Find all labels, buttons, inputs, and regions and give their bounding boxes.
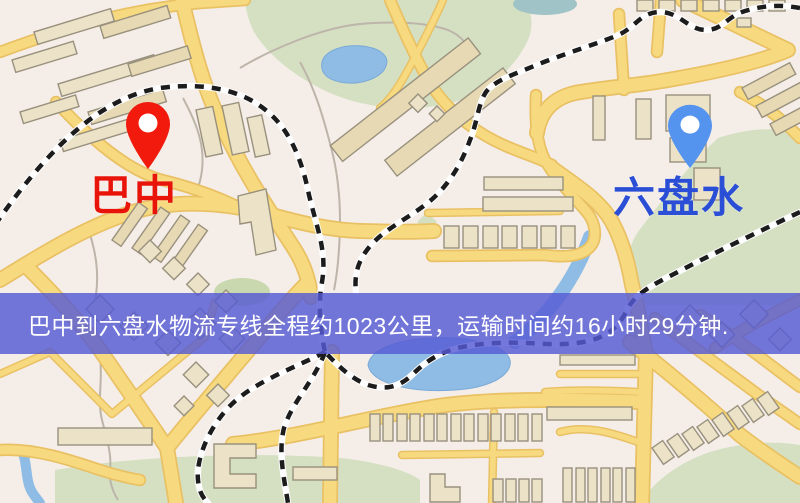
map-background [0, 0, 800, 503]
origin-label: 巴中 [90, 174, 178, 218]
origin-pin-shape [126, 102, 170, 169]
destination-label: 六盘水 [613, 176, 745, 220]
route-info-banner: 巴中到六盘水物流专线全程约1023公里，运输时间约16小时29分钟. [0, 293, 800, 354]
destination-pin-shape [668, 105, 712, 168]
origin-pin-hole [139, 114, 158, 133]
destination-pin-hole [681, 116, 700, 134]
map-view: 巴中 六盘水 巴中到六盘水物流专线全程约1023公里，运输时间约16小时29分钟… [0, 0, 800, 503]
origin-pin-icon[interactable] [122, 98, 174, 170]
destination-pin-icon[interactable] [664, 101, 716, 169]
route-info-text: 巴中到六盘水物流专线全程约1023公里，运输时间约16小时29分钟. [28, 307, 729, 341]
